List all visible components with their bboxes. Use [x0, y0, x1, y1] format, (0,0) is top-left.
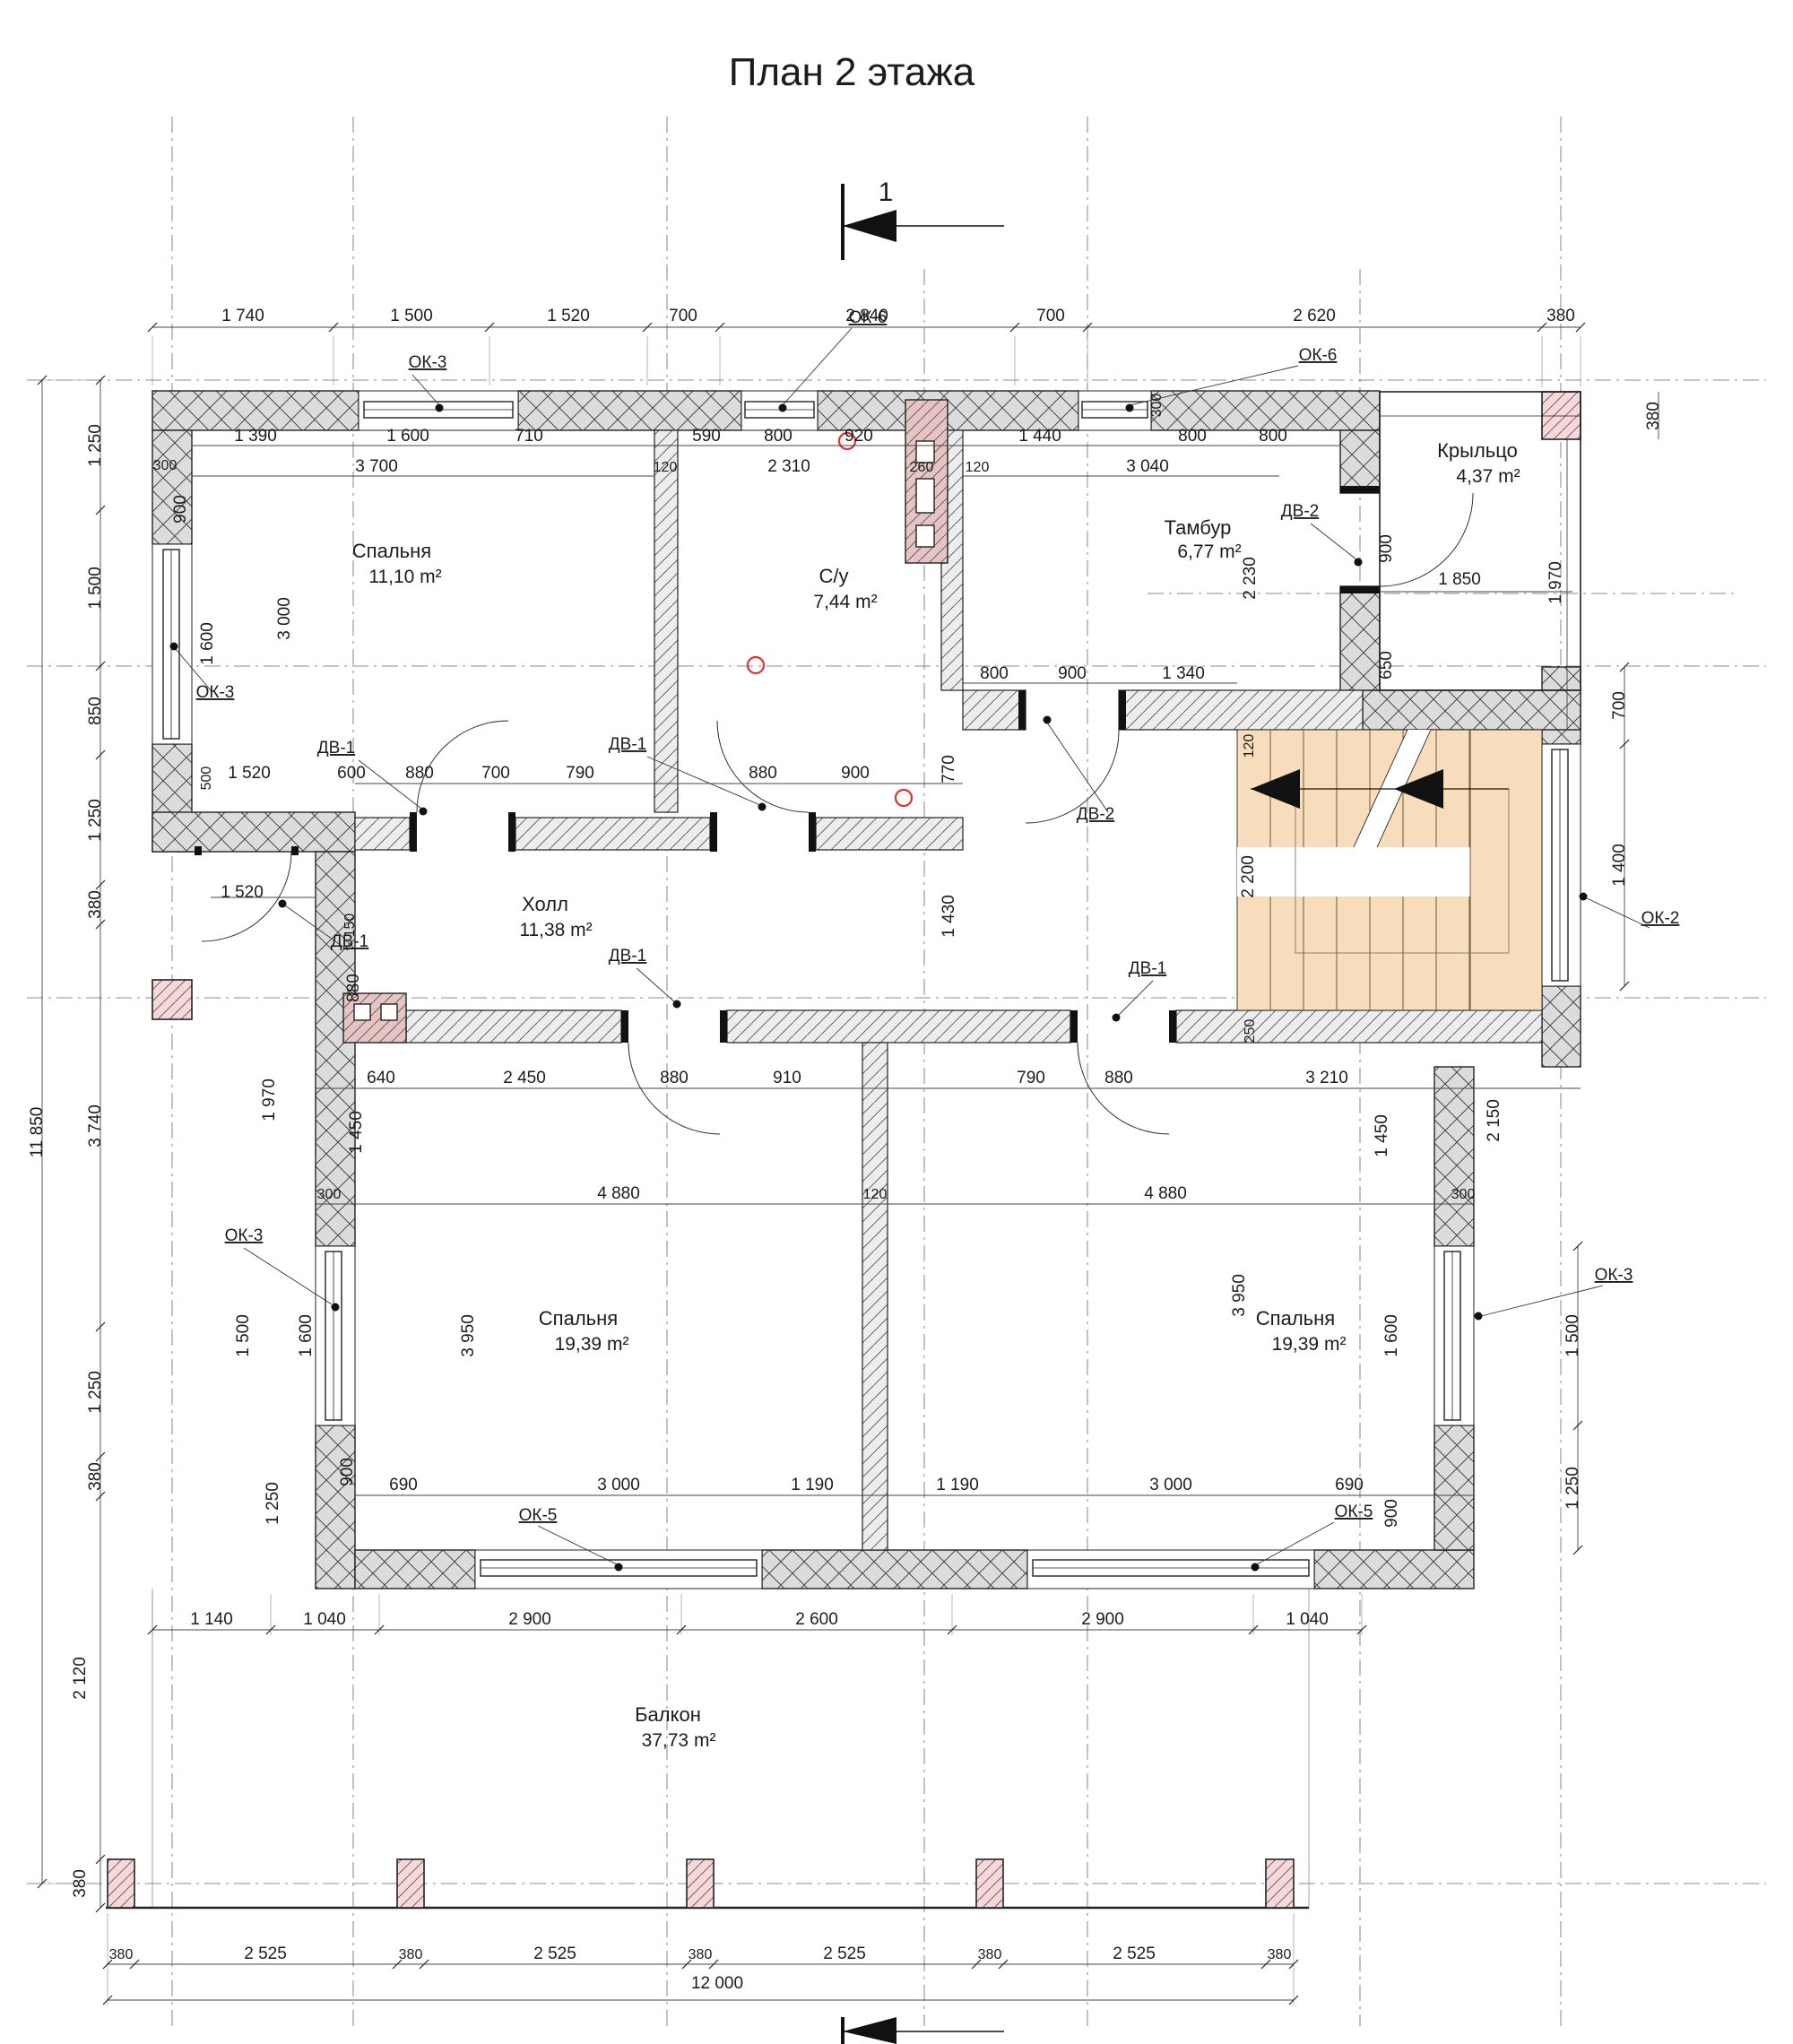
text-room-name: Спальня	[352, 540, 431, 562]
text-dim: 1 970	[1546, 561, 1565, 604]
text-door-label: ДВ-1	[317, 739, 355, 758]
text-dim: 2 900	[1081, 1610, 1124, 1629]
text-dim: 910	[773, 1069, 801, 1087]
text-dim: 590	[692, 427, 721, 446]
text-room-area: 37,73 m²	[642, 1730, 716, 1751]
text-win-label: ОК-3	[1595, 1266, 1633, 1285]
text-room-name: Крыльцо	[1437, 439, 1518, 462]
text-dim-total: 12 000	[691, 1974, 743, 1993]
text-dim: 600	[337, 764, 366, 783]
text-dim: 260	[910, 460, 934, 475]
text-dim: 300	[1149, 394, 1165, 418]
text-dim: 900	[1377, 534, 1396, 563]
text-dim: 380	[86, 1462, 105, 1491]
window-ok6-b	[1078, 391, 1151, 430]
text-door-label: ДВ-2	[1077, 805, 1114, 824]
text-dim: 1 040	[1286, 1610, 1329, 1629]
text-dim: 690	[1335, 1476, 1364, 1494]
text-room-name: Тамбур	[1165, 516, 1232, 539]
text-dim: 700	[481, 764, 510, 783]
text-dim: 3 000	[275, 597, 294, 640]
text-dim: 710	[515, 427, 543, 446]
text-dim: 2 450	[503, 1069, 546, 1087]
text-dim: 2 120	[71, 1657, 90, 1700]
text-dim: 3 740	[86, 1104, 105, 1148]
text-win-label: ОК-3	[409, 353, 447, 372]
text-dim: 1 740	[221, 307, 264, 325]
text-dim: 1 500	[1563, 1314, 1582, 1357]
section-marker-top	[843, 184, 1004, 260]
text-dim: 900	[1382, 1499, 1401, 1528]
text-dim: 900	[338, 1458, 357, 1486]
text-dim: 380	[71, 1869, 90, 1898]
text-dim: 700	[1610, 691, 1629, 720]
text-win-label: ОК-2	[1641, 909, 1680, 928]
text-door-label: ДВ-1	[331, 932, 368, 951]
window-ok3-lower-left	[316, 1246, 355, 1425]
text-dim: 1 520	[228, 764, 271, 783]
text-dim: 1 450	[1373, 1114, 1391, 1157]
text-dim: 1 390	[234, 427, 277, 446]
text-dim: 1 340	[1162, 664, 1205, 683]
text-dim: 2 525	[244, 1944, 287, 1963]
text-dim: 1 400	[1610, 844, 1629, 887]
text-room-name: С/у	[819, 565, 849, 587]
text-room-area: 6,77 m²	[1177, 541, 1241, 562]
text-dim: 2 310	[767, 457, 810, 476]
text-dim: 2 200	[1239, 855, 1258, 898]
text-dim: 3 700	[355, 457, 398, 476]
text-dim: 790	[1017, 1069, 1045, 1087]
text-dim: 880	[1104, 1069, 1133, 1087]
text-dim: 1 500	[86, 567, 105, 610]
text-room-area: 7,44 m²	[813, 592, 877, 612]
text-dim: 1 250	[1563, 1467, 1582, 1510]
text-dim: 380	[109, 1947, 134, 1962]
text-dim: 380	[1644, 402, 1663, 430]
text-dim: 300	[153, 458, 178, 473]
text-dim: 3 950	[1230, 1274, 1249, 1317]
text-room-area: 19,39 m²	[555, 1334, 629, 1355]
text-room-area: 11,38 m²	[519, 920, 592, 940]
text-dim: 1 600	[198, 622, 217, 665]
text-dim: 1 040	[303, 1610, 346, 1629]
text-win-label: ОК-6	[849, 308, 888, 327]
text-dim: 4 880	[597, 1184, 640, 1203]
text-dim: 380	[978, 1947, 1002, 1962]
text-dim: 4 880	[1144, 1184, 1187, 1203]
text-marker-1: 1	[879, 178, 894, 207]
text-dim: 900	[1058, 664, 1087, 683]
text-dim: 920	[845, 427, 873, 446]
text-dim: 120	[654, 460, 678, 475]
text-dim: 3 040	[1126, 457, 1169, 476]
text-dim: 380	[399, 1947, 423, 1962]
text-dim: 2 600	[795, 1610, 838, 1629]
text-room-name: Балкон	[635, 1703, 701, 1726]
text-win-label: ОК-3	[196, 683, 235, 702]
text-dim: 1 250	[264, 1482, 282, 1525]
text-room-area: 19,39 m²	[1272, 1334, 1347, 1355]
text-dim: 120	[863, 1187, 888, 1202]
text-dim: 2 620	[1293, 307, 1336, 325]
text-dim: 3 950	[459, 1314, 478, 1357]
text-dim: 650	[1377, 651, 1396, 680]
text-dim: 1 850	[1438, 570, 1481, 589]
red-markers	[748, 433, 912, 806]
text-dim: 880	[405, 764, 434, 783]
text-dim: 1 140	[190, 1610, 233, 1629]
window-ok6-a	[741, 391, 818, 430]
text-dim: 120	[966, 460, 990, 475]
text-dim: 500	[199, 766, 214, 791]
text-dim: 2 150	[1485, 1099, 1503, 1142]
text-dim: 1 500	[234, 1314, 253, 1357]
text-dim: 300	[1451, 1187, 1476, 1202]
text-layer: 11 7401 5001 5207002 8407002 620380ОК-3О…	[28, 178, 1679, 1993]
text-room-name: Спальня	[1256, 1307, 1335, 1329]
text-door-label: ДВ-1	[609, 947, 646, 966]
text-dim: 2 230	[1241, 557, 1260, 600]
text-dim: 3 000	[1149, 1476, 1192, 1494]
text-dim: 1 450	[347, 1111, 366, 1154]
window-ok3-lower-right	[1434, 1246, 1474, 1425]
text-dim: 2 525	[1113, 1944, 1156, 1963]
window-ok2-right	[1542, 744, 1581, 986]
text-dim: 380	[1546, 307, 1575, 325]
text-room-name: Холл	[522, 893, 568, 915]
text-dim: 850	[86, 697, 105, 725]
text-door-label: ДВ-1	[1129, 959, 1166, 978]
text-dim: 880	[749, 764, 777, 783]
text-dim: 1 250	[86, 1371, 105, 1414]
text-dim: 2 525	[823, 1944, 866, 1963]
text-door-label: ДВ-1	[609, 735, 646, 754]
text-dim: 700	[1036, 307, 1065, 325]
text-dim: 1 520	[221, 883, 264, 902]
text-dim: 11 850	[28, 1107, 47, 1158]
stairs	[1237, 730, 1542, 1010]
text-win-label: ОК-5	[519, 1506, 558, 1525]
text-dim: 800	[764, 427, 793, 446]
text-dim: 800	[1259, 427, 1287, 446]
text-dim: 800	[980, 664, 1009, 683]
page-title: План 2 этажа	[729, 50, 975, 94]
text-room-area: 11,10 m²	[368, 567, 441, 587]
text-room-area: 4,37 m²	[1456, 466, 1520, 487]
text-dim: 1 440	[1018, 427, 1061, 446]
text-dim: 640	[367, 1069, 395, 1087]
text-dim: 380	[689, 1947, 713, 1962]
text-dim: 900	[171, 495, 190, 524]
text-dim: 1 970	[260, 1078, 279, 1122]
text-dim: 1 430	[940, 895, 958, 938]
text-dim: 2 525	[533, 1944, 576, 1963]
text-dim: 380	[86, 890, 105, 919]
text-dim: 1 190	[936, 1476, 979, 1494]
text-win-label: ОК-3	[225, 1226, 264, 1245]
text-dim: 1 520	[547, 307, 590, 325]
text-dim: 800	[1178, 427, 1207, 446]
text-dim: 770	[940, 755, 958, 784]
text-dim: 1 250	[86, 424, 105, 467]
text-dim: 1 500	[390, 307, 433, 325]
text-dim: 3 000	[597, 1476, 640, 1494]
text-dim: 790	[566, 764, 594, 783]
text-dim: 250	[1243, 1019, 1258, 1044]
text-dim: 700	[669, 307, 697, 325]
text-dim: 1 190	[791, 1476, 834, 1494]
floor-plan-page: План 2 этажа 11 7401 5001 5207002 840700…	[0, 0, 1793, 2044]
text-dim: 3 210	[1305, 1069, 1348, 1087]
text-dim: 880	[344, 974, 363, 1002]
text-dim: 120	[1242, 734, 1257, 758]
window-ok5-right	[1027, 1550, 1314, 1589]
text-room-name: Спальня	[539, 1307, 618, 1329]
text-dim: 1 600	[1382, 1314, 1401, 1357]
text-dim: 690	[389, 1476, 418, 1494]
floor-plan-drawing: План 2 этажа 11 7401 5001 5207002 840700…	[0, 0, 1793, 2044]
section-marker-bottom	[843, 2017, 1004, 2044]
text-dim: 1 600	[297, 1314, 316, 1357]
text-dim: 900	[841, 764, 870, 783]
text-win-label: ОК-6	[1299, 346, 1338, 365]
text-door-label: ДВ-2	[1281, 502, 1319, 521]
text-dim: 300	[317, 1187, 342, 1202]
text-dim: 880	[660, 1069, 689, 1087]
text-dim: 1 250	[86, 799, 105, 842]
text-dim: 1 600	[386, 427, 429, 446]
text-dim: 380	[1268, 1947, 1292, 1962]
text-dim: 2 900	[508, 1610, 551, 1629]
text-win-label: ОК-5	[1335, 1503, 1373, 1521]
